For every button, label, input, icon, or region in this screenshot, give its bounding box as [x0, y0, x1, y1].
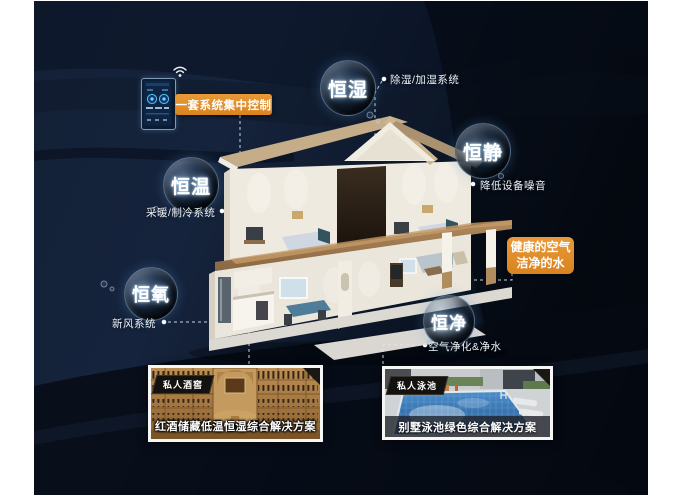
private-wine-cellar-tag-text: 私人酒窖: [163, 378, 203, 391]
healthy-air-line: 健康的空气: [510, 240, 570, 256]
private-wine-cellar-tag: 私人酒窖: [152, 375, 215, 394]
corner-fold-icon: [533, 369, 550, 386]
central-control-callout: 一套系统集中控制: [175, 94, 272, 115]
pool-photo-card: 私人泳池 别墅泳池绿色综合解决方案: [382, 366, 553, 440]
constant-humidity-text: 恒湿: [328, 75, 368, 102]
constant-oxygen-bubble: 恒氧: [124, 267, 178, 321]
heating-cooling-label: 采暖/制冷系统: [146, 205, 215, 220]
healthy-air-water-callout: 健康的空气 洁净的水: [507, 237, 574, 274]
constant-temperature-text: 恒温: [171, 172, 211, 199]
central-control-text: 一套系统集中控制: [176, 97, 272, 113]
clean-water-line: 洁净的水: [516, 256, 564, 272]
private-pool-tag: 私人泳池: [386, 376, 449, 395]
wine-cellar-photo: 私人酒窖 红酒储藏低温恒湿综合解决方案: [151, 368, 320, 439]
wine-cellar-photo-card: 私人酒窖 红酒储藏低温恒湿综合解决方案: [148, 365, 323, 442]
pool-photo: 私人泳池 别墅泳池绿色综合解决方案: [385, 369, 550, 437]
wifi-icon: [172, 64, 188, 78]
constant-quiet-text: 恒静: [463, 138, 503, 165]
corner-fold-icon: [303, 368, 320, 385]
poster-canvas: 一套系统集中控制 健康的空气 洁净的水 恒湿 恒静 恒温 恒氧 恒净 除湿/加湿…: [34, 1, 648, 495]
fresh-air-label: 新风系统: [112, 316, 156, 331]
constant-quiet-bubble: 恒静: [455, 123, 511, 179]
constant-humidity-bubble: 恒湿: [320, 60, 376, 116]
constant-oxygen-text: 恒氧: [132, 281, 170, 307]
smart-home-controller: [141, 78, 176, 130]
constant-purity-text: 恒净: [431, 309, 467, 334]
pool-solution-caption: 别墅泳池绿色综合解决方案: [385, 416, 550, 437]
noise-reduction-label: 降低设备噪音: [480, 178, 546, 193]
wine-storage-caption: 红酒储藏低温恒湿综合解决方案: [151, 418, 320, 434]
purification-label: 空气净化&净水: [428, 339, 502, 354]
controller-screen: [142, 79, 173, 127]
dehumidify-humidify-label: 除湿/加湿系统: [390, 72, 459, 87]
private-pool-tag-text: 私人泳池: [397, 379, 437, 392]
infographic-poster: 一套系统集中控制 健康的空气 洁净的水 恒湿 恒静 恒温 恒氧 恒净 除湿/加湿…: [0, 0, 700, 497]
